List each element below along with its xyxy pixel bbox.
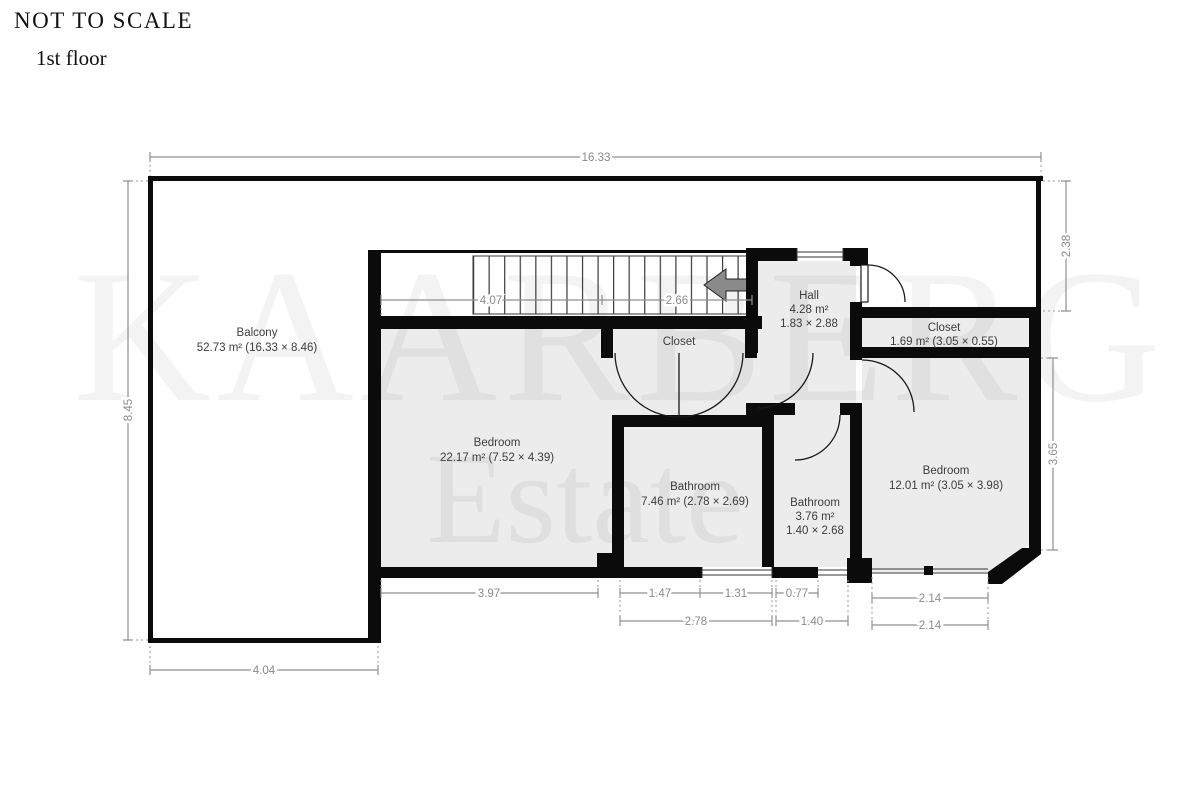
floor-plan-page: NOT TO SCALE 1st floor KAARBERG Estate <box>0 0 1200 810</box>
hall-dims: 1.83 × 2.88 <box>780 318 838 330</box>
dim-b1-147: 1.47 <box>649 588 671 600</box>
dim-stair-left: 4.07 <box>480 295 502 307</box>
dim-b1-397: 3.97 <box>478 588 500 600</box>
dim-b1-131: 1.31 <box>725 588 747 600</box>
dim-b1-077: 0.77 <box>786 588 808 600</box>
bathroom-large-name: Bathroom <box>670 481 720 493</box>
bedroom-large-area: 22.17 m² (7.52 × 4.39) <box>440 452 554 464</box>
bathroom-small-dims: 1.40 × 2.68 <box>786 525 844 537</box>
bedroom-large-name: Bedroom <box>474 437 521 449</box>
dim-overall-height: 8.45 <box>123 399 135 421</box>
hall-area: 4.28 m² <box>790 304 829 316</box>
bathroom-small-area: 3.76 m² <box>796 511 835 523</box>
dim-right-upper: 2.38 <box>1061 235 1073 257</box>
dim-right-lower: 3.65 <box>1048 443 1060 465</box>
bathroom-large-area: 7.46 m² (2.78 × 2.69) <box>641 496 749 508</box>
bathroom-small-window <box>818 567 847 578</box>
dim-b2-140: 1.40 <box>801 616 823 628</box>
hall-name: Hall <box>799 290 819 302</box>
staircase <box>473 256 753 314</box>
entry-door-leaf <box>861 265 868 302</box>
dim-b2-278: 2.78 <box>685 616 707 628</box>
balcony-name: Balcony <box>237 327 278 339</box>
bedroom-small-area: 12.01 m² (3.05 × 3.98) <box>889 480 1003 492</box>
closet-right-area: 1.69 m² (3.05 × 0.55) <box>890 336 998 348</box>
closet-right-name: Closet <box>928 322 961 334</box>
bathroom-small-name: Bathroom <box>790 497 840 509</box>
balcony-area: 52.73 m² (16.33 × 8.46) <box>197 342 318 354</box>
dim-overall-width: 16.33 <box>582 152 611 164</box>
dim-b1-214: 2.14 <box>919 593 942 605</box>
floor-plan-svg: KAARBERG Estate <box>0 0 1200 810</box>
dim-balcony-bottom: 4.04 <box>253 665 276 677</box>
bedroom-small-name: Bedroom <box>923 465 970 477</box>
dim-stair-right: 2.66 <box>666 295 688 307</box>
closet-center-name: Closet <box>663 336 696 348</box>
bathroom-large-window <box>702 567 772 578</box>
hall-window <box>797 248 843 261</box>
dim-b2-214: 2.14 <box>919 620 942 632</box>
